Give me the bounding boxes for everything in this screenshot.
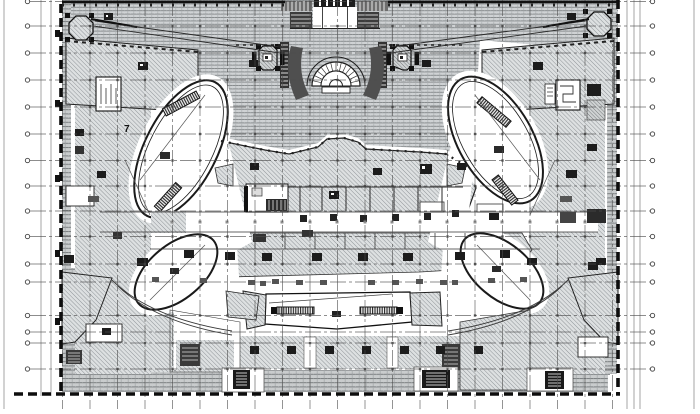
svg-text:7: 7 [124, 124, 130, 135]
